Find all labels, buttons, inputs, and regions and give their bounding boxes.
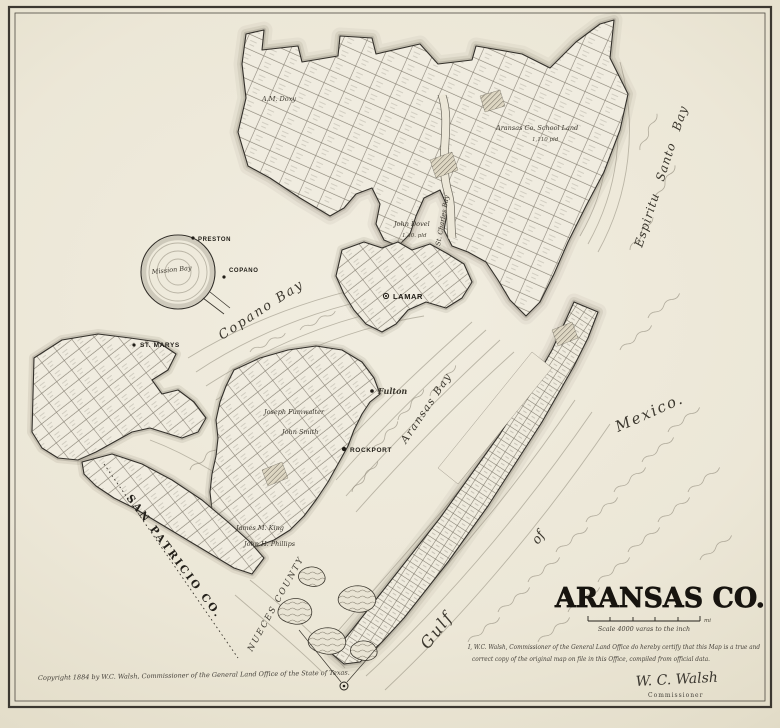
certification-line-1: I, W.C. Walsh, Commissioner of the Gener… [467,643,760,651]
town-label-st-marys: ST. MARYS [140,342,180,349]
town-dot-fulton [370,389,374,393]
scale-unit: mi [704,618,711,624]
survey-dovel-acreage: 1 40. pld [402,233,427,239]
lighthouse-marker [340,682,348,690]
survey-fumwalter: Joseph Fumwalter [262,408,325,416]
town-dot-rockport [342,447,346,451]
town-dot-preston [191,236,194,239]
survey-doxy: A.M. Doxy [261,95,296,103]
town-dot-copano [222,275,225,278]
town-label-rockport: ROCKPORT [350,447,392,454]
label-mexico: Mexico. [611,389,686,436]
label-mission-bay: Mission Bay [150,264,192,276]
town-label-preston: PRESTON [198,237,231,243]
town-dot-lamar-core [385,295,387,297]
signature-title: Commissioner [648,692,703,699]
scale-bar: mi Scale 4000 varas to the inch [588,616,711,633]
st-marys-headland [32,334,206,460]
scale-caption: Scale 4000 varas to the inch [598,625,690,633]
survey-smith: John Smith [280,428,318,436]
town-label-copano: COPANO [229,268,259,274]
map-sheet: Copano Bay Aransas Bay Espiritu Santo Ba… [0,0,780,728]
commissioner-signature: W. C. Walsh [635,670,718,690]
town-label-lamar: LAMAR [393,292,423,301]
survey-dovel: John Dovel [392,220,430,228]
lamar-peninsula [336,242,472,332]
survey-school-acreage: 1,110 pld [532,137,559,143]
copyright-note: Copyright 1884 by W.C. Walsh, Commission… [38,669,350,682]
label-copano-bay: Copano Bay [216,277,307,343]
certification-line-2: correct copy of the original map on file… [472,655,710,663]
survey-phillips: John H. Phillips [242,540,296,548]
survey-king: James M. King [234,524,284,532]
town-label-fulton: Fulton [377,386,407,396]
map-title: ARANSAS CO. [554,583,765,614]
town-dot-st-marys [132,343,135,346]
survey-school-land: Aransas Co. School Land [495,124,578,132]
label-espiritu-santo-bay: Espiritu Santo Bay [631,104,690,250]
map-canvas: Copano Bay Aransas Bay Espiritu Santo Ba… [0,0,780,728]
label-gulf: Gulf [416,607,458,653]
